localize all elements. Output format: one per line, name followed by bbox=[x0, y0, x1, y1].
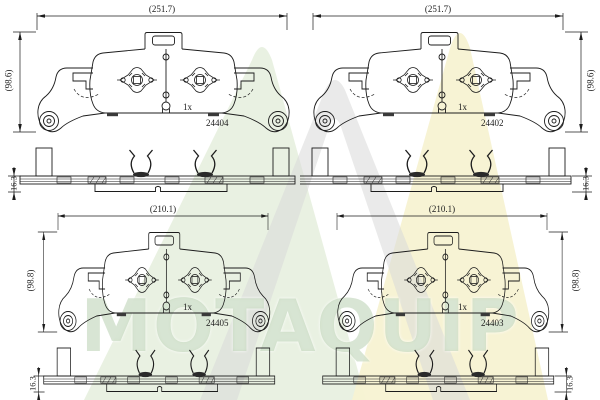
height-dimension-label: (98.8) bbox=[571, 251, 582, 311]
pad-drawing-bottom-right: (210.1) (98.8) 16.3 1x 24403 bbox=[300, 200, 600, 400]
pad-front-and-edge-view bbox=[0, 200, 300, 400]
brake-pad-fitting-diagram: MOTAQUIP (251.7) (98.6) 16.3 1x 24404 (2… bbox=[0, 0, 600, 400]
pad-front-and-edge-view bbox=[300, 200, 600, 400]
pad-front-and-edge-view bbox=[300, 0, 600, 200]
quantity-label: 1x bbox=[183, 302, 192, 313]
pad-front-and-edge-view bbox=[0, 0, 300, 200]
part-number: 24405 bbox=[206, 318, 229, 329]
thickness-dimension-label: 16.3 bbox=[28, 364, 39, 400]
height-dimension-label: (98.6) bbox=[4, 51, 15, 111]
width-dimension-label: (251.7) bbox=[37, 4, 287, 15]
part-number: 24404 bbox=[206, 118, 229, 129]
pad-drawing-bottom-left: (210.1) (98.8) 16.3 1x 24405 bbox=[0, 200, 300, 400]
pad-drawing-top-right: (251.7) (98.6) 16.3 1x 24402 bbox=[300, 0, 600, 200]
quantity-label: 1x bbox=[458, 102, 467, 113]
quantity-label: 1x bbox=[458, 302, 467, 313]
pad-drawing-top-left: (251.7) (98.6) 16.3 1x 24404 bbox=[0, 0, 300, 200]
height-dimension-label: (98.6) bbox=[586, 51, 597, 111]
width-dimension-label: (210.1) bbox=[337, 204, 547, 215]
thickness-dimension-label: 16.3 bbox=[581, 164, 592, 204]
thickness-dimension-label: 16.3 bbox=[9, 164, 20, 204]
part-number: 24403 bbox=[481, 318, 504, 329]
width-dimension-label: (251.7) bbox=[313, 4, 563, 15]
width-dimension-label: (210.1) bbox=[58, 204, 268, 215]
thickness-dimension-label: 16.3 bbox=[565, 364, 576, 400]
quantity-label: 1x bbox=[183, 102, 192, 113]
height-dimension-label: (98.8) bbox=[26, 251, 37, 311]
part-number: 24402 bbox=[481, 118, 504, 129]
